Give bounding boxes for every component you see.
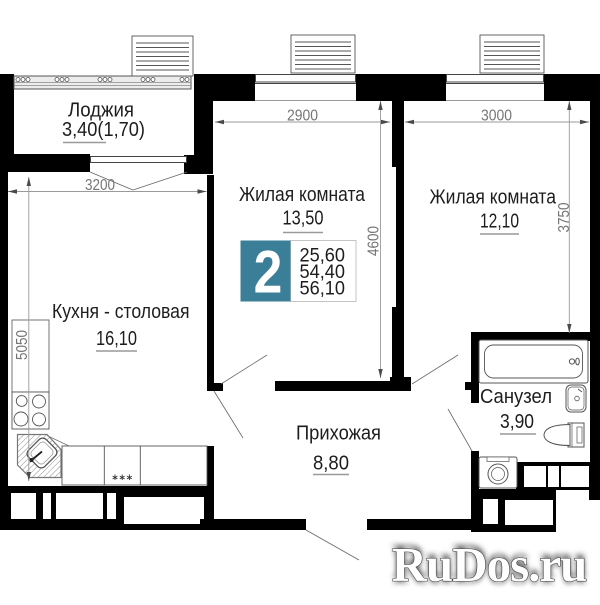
svg-text:Жилая комната: Жилая комната bbox=[430, 186, 557, 209]
svg-text:Прихожая: Прихожая bbox=[296, 422, 381, 445]
svg-text:3,90: 3,90 bbox=[500, 410, 534, 433]
svg-text:3200: 3200 bbox=[85, 177, 115, 194]
svg-text:3750: 3750 bbox=[556, 202, 573, 232]
svg-text:3000: 3000 bbox=[481, 107, 512, 124]
svg-text:56,10: 56,10 bbox=[300, 279, 346, 300]
svg-text:8,80: 8,80 bbox=[313, 452, 349, 475]
svg-text:4600: 4600 bbox=[366, 226, 383, 256]
svg-text:5050: 5050 bbox=[14, 330, 31, 360]
svg-text:3,40(1,70): 3,40(1,70) bbox=[62, 118, 145, 141]
svg-text:16,10: 16,10 bbox=[96, 327, 137, 350]
svg-text:Санузел: Санузел bbox=[480, 385, 552, 408]
svg-text:Жилая комната: Жилая комната bbox=[239, 183, 365, 206]
svg-text:2900: 2900 bbox=[287, 107, 318, 124]
svg-text:Кухня - столовая: Кухня - столовая bbox=[52, 300, 190, 323]
svg-text:RuDos.ru: RuDos.ru bbox=[392, 537, 587, 592]
svg-text:2: 2 bbox=[254, 238, 283, 306]
svg-text:13,50: 13,50 bbox=[283, 207, 324, 230]
svg-text:12,10: 12,10 bbox=[480, 210, 519, 233]
